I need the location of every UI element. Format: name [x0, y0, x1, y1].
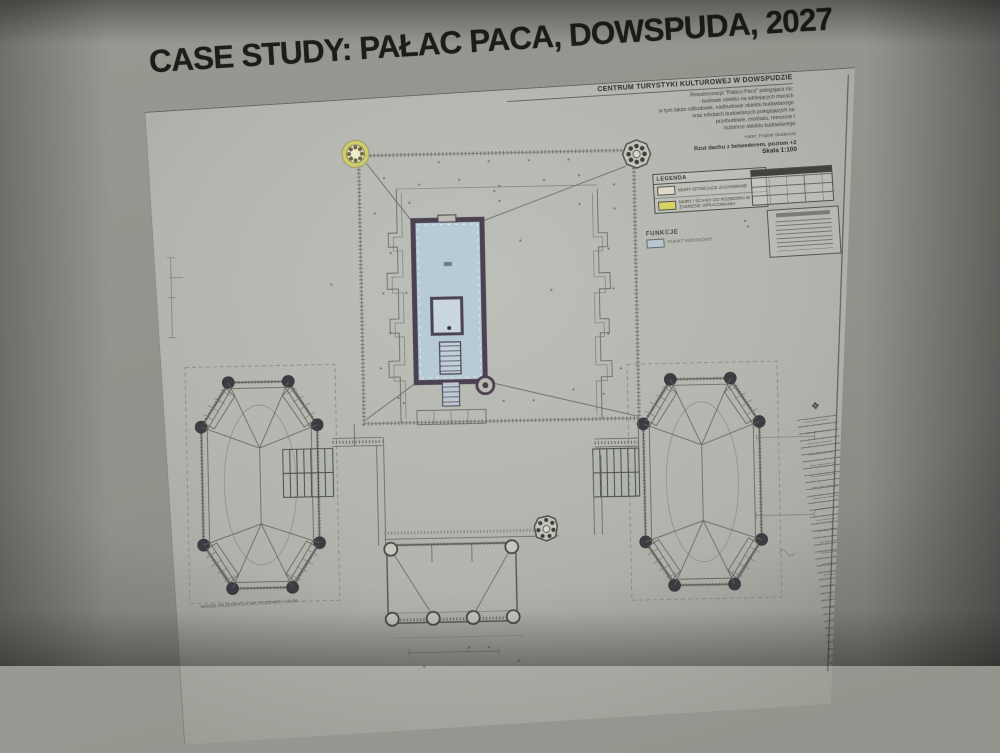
- legend-swatch-demolition-walls: [658, 200, 677, 210]
- portico: [384, 540, 520, 657]
- function-label: PUNKT WIDOKOWY: [667, 237, 712, 245]
- stair-tower: [534, 516, 558, 541]
- approval-stamp: [767, 205, 842, 257]
- area-table: [750, 165, 834, 206]
- titleblock-logo-icon: ❖: [806, 400, 825, 413]
- legend-label: MURY ISTNIEJĄCE ZACHOWANE: [678, 183, 747, 192]
- function-swatch-viewpoint: [646, 238, 665, 248]
- projected-slide: CASE STUDY: PAŁAC PACA, DOWSPUDA, 2027: [140, 0, 907, 753]
- legend-swatch-existing-walls: [657, 186, 676, 196]
- drawing-sheet: CENTRUM TURYSTYKI KULTUROWEJ W DOWSPUDZI…: [144, 67, 895, 746]
- belvedere-building: [413, 214, 494, 407]
- yellow-tower-marker: [342, 140, 370, 168]
- skylight-grid: [283, 442, 640, 503]
- slide-title: CASE STUDY: PAŁAC PACA, DOWSPUDA, 2027: [148, 1, 834, 81]
